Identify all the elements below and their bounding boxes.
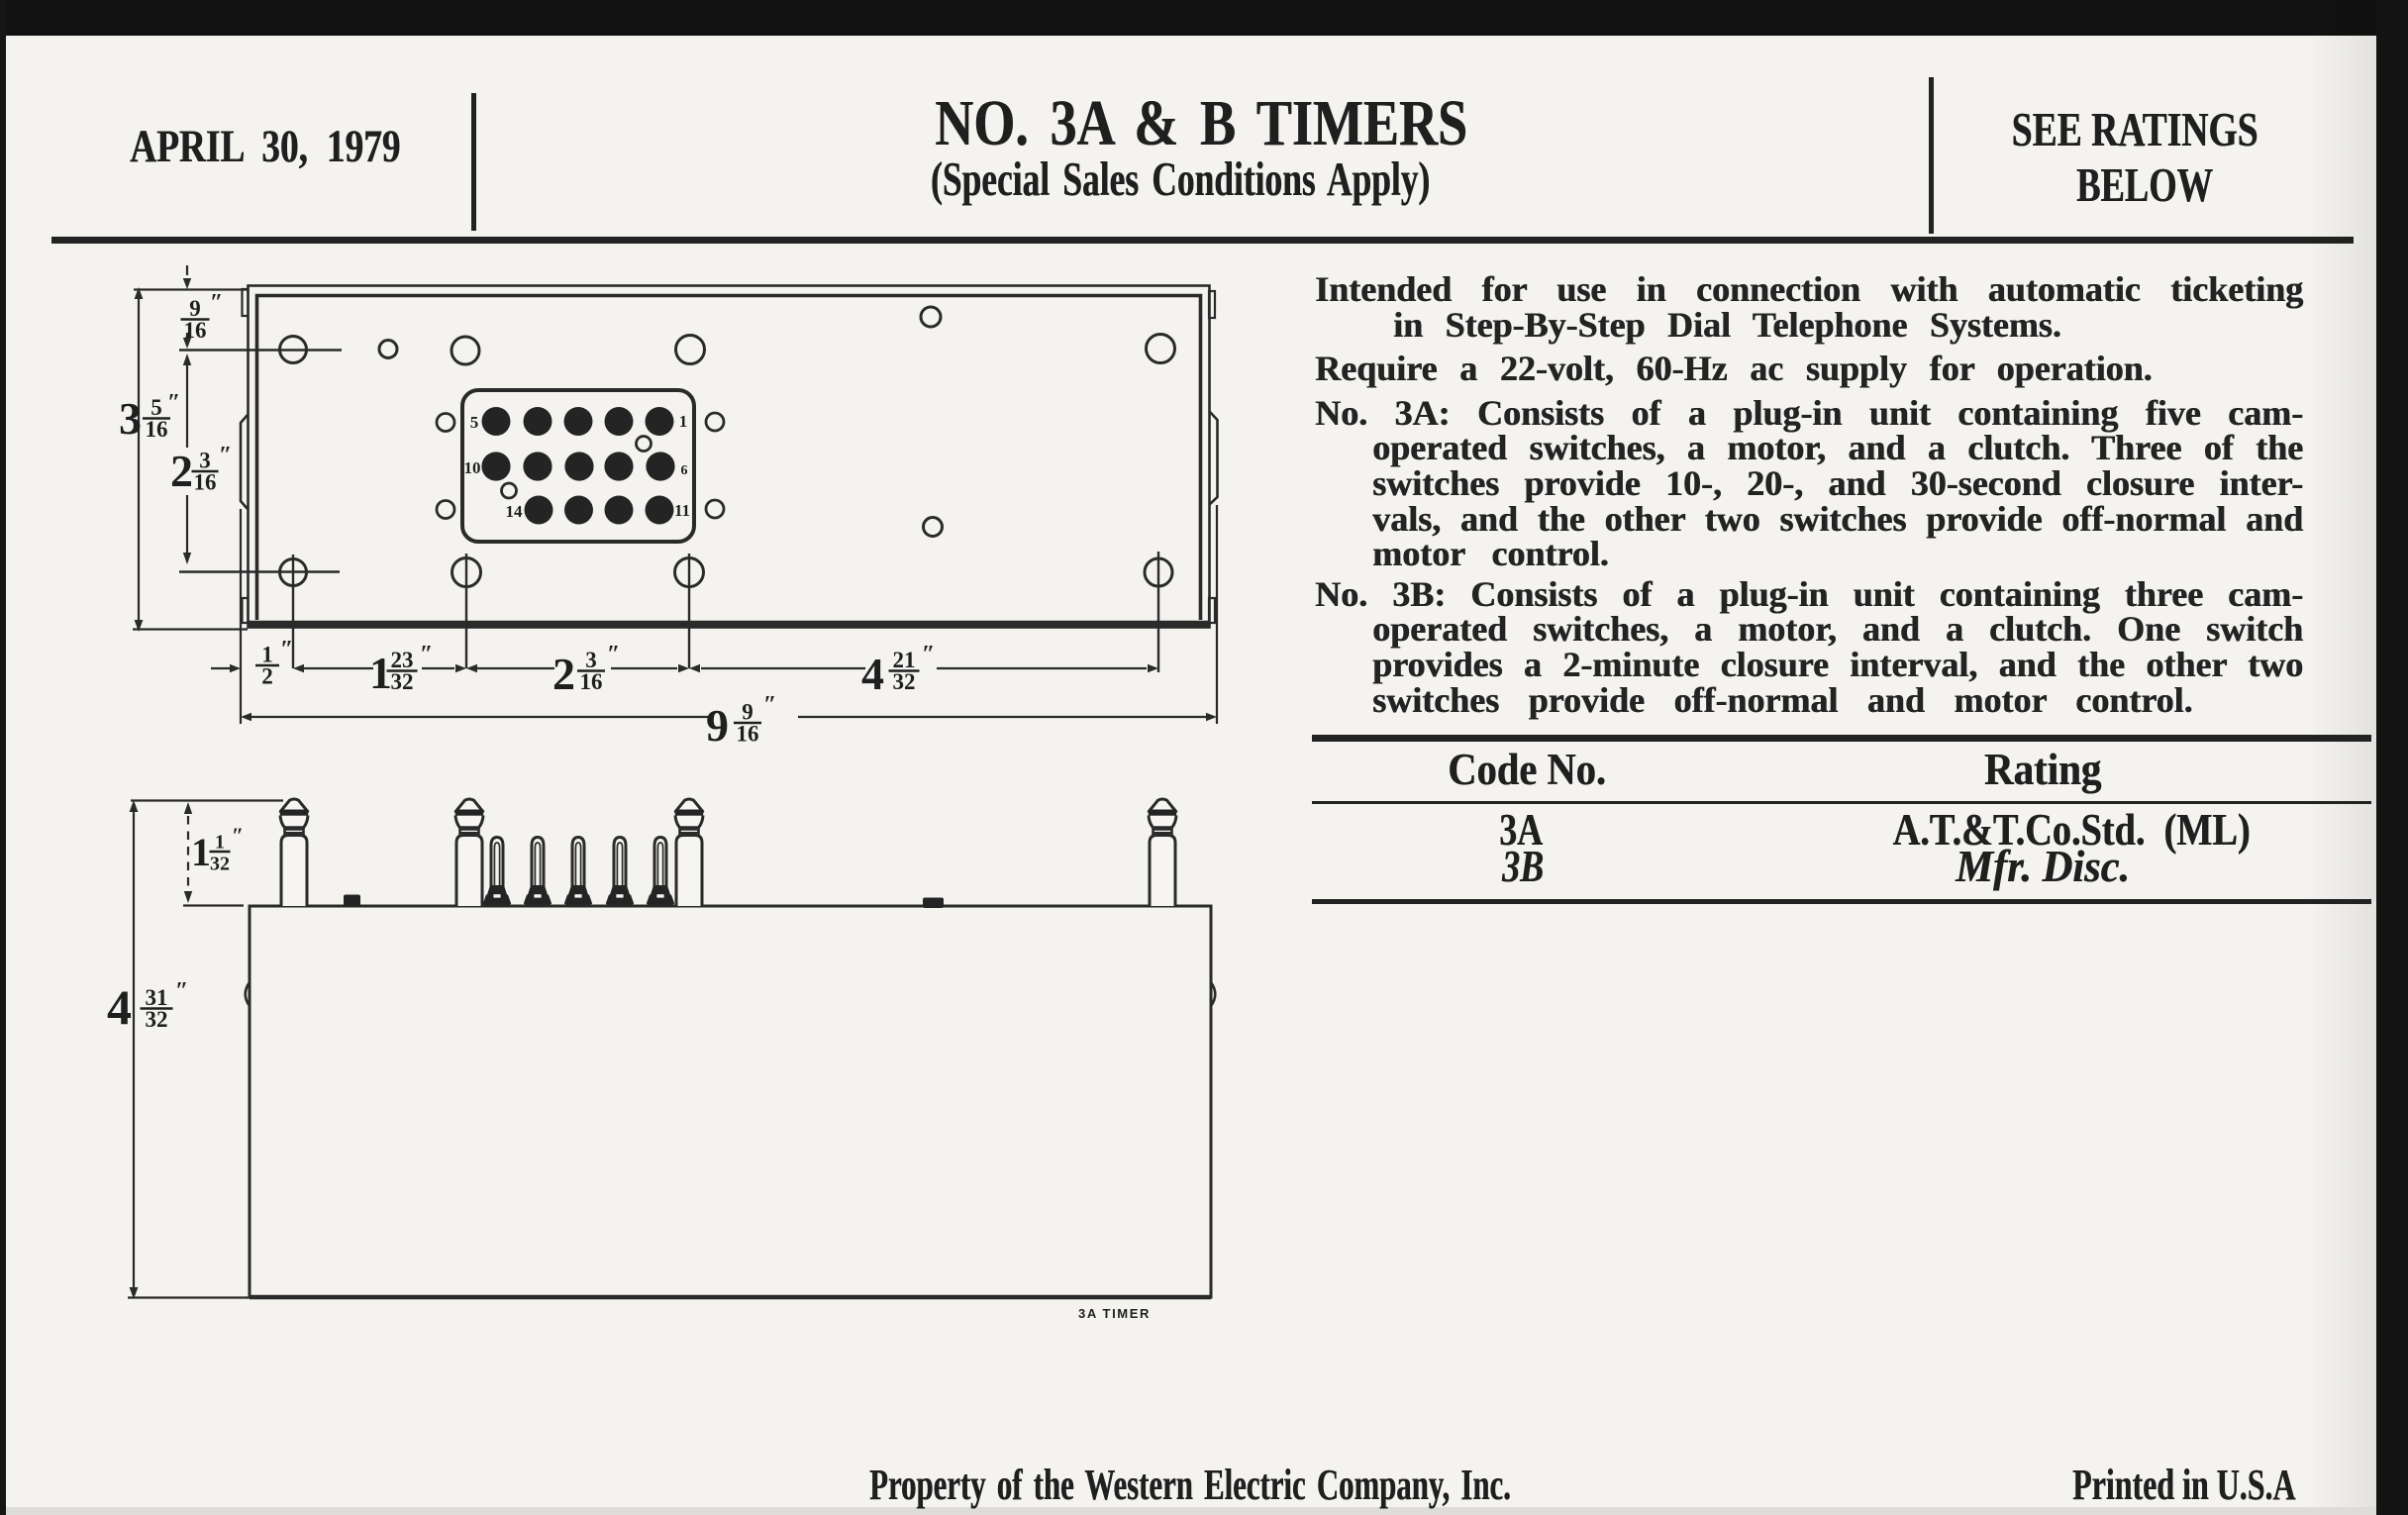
svg-text:1: 1 xyxy=(369,648,392,698)
svg-text:11: 11 xyxy=(674,501,690,520)
svg-text:″: ″ xyxy=(763,692,776,718)
svg-text:″: ″ xyxy=(280,637,293,662)
svg-text:1: 1 xyxy=(679,412,688,431)
svg-text:2: 2 xyxy=(261,664,273,689)
svg-text:14: 14 xyxy=(506,502,524,521)
svg-text:32: 32 xyxy=(210,854,230,875)
svg-text:16: 16 xyxy=(580,669,603,694)
svg-text:″: ″ xyxy=(607,642,620,667)
svg-text:10: 10 xyxy=(464,458,481,477)
svg-text:3: 3 xyxy=(119,393,142,444)
svg-text:″: ″ xyxy=(175,978,188,1004)
svg-text:″: ″ xyxy=(232,823,244,848)
svg-text:6: 6 xyxy=(681,463,688,478)
svg-text:″: ″ xyxy=(420,642,433,667)
svg-text:4: 4 xyxy=(861,649,884,699)
svg-text:″: ″ xyxy=(167,390,180,416)
svg-text:32: 32 xyxy=(893,669,916,694)
svg-text:″: ″ xyxy=(210,290,223,316)
svg-text:16: 16 xyxy=(146,417,168,442)
svg-text:″: ″ xyxy=(219,443,232,468)
svg-text:16: 16 xyxy=(737,722,759,747)
svg-text:16: 16 xyxy=(184,318,207,343)
svg-text:1: 1 xyxy=(215,832,225,854)
svg-text:9: 9 xyxy=(706,700,729,751)
svg-text:″: ″ xyxy=(922,642,935,667)
svg-text:1: 1 xyxy=(191,830,211,874)
svg-text:3A TIMER: 3A TIMER xyxy=(1078,1306,1151,1321)
svg-text:2: 2 xyxy=(552,649,575,699)
svg-text:32: 32 xyxy=(391,669,414,694)
svg-text:4: 4 xyxy=(107,979,132,1035)
svg-text:16: 16 xyxy=(194,470,217,495)
svg-text:5: 5 xyxy=(470,413,479,432)
svg-text:2: 2 xyxy=(170,446,193,496)
svg-text:32: 32 xyxy=(146,1007,168,1032)
